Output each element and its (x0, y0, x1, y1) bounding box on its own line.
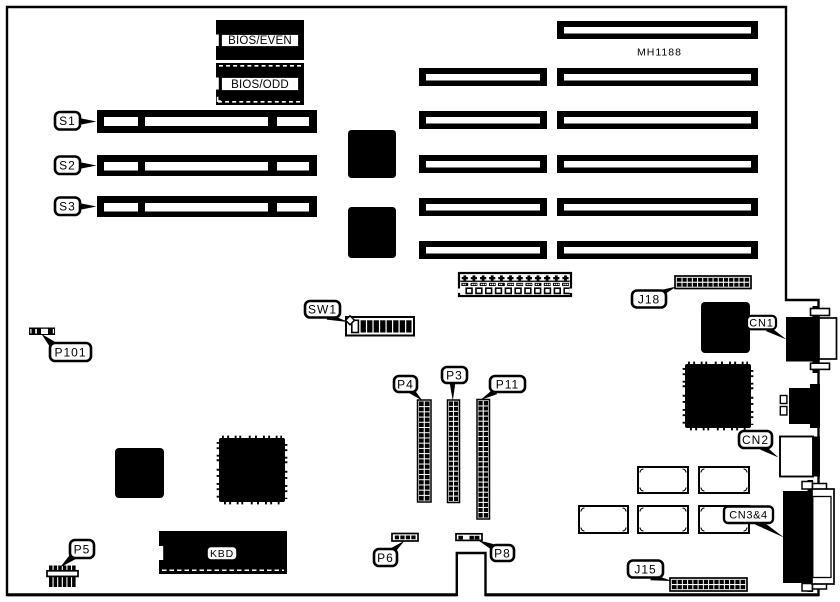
svg-text:J15: J15 (634, 562, 656, 576)
svg-text:BIOS/ODD: BIOS/ODD (231, 79, 289, 91)
svg-text:BIOS/EVEN: BIOS/EVEN (228, 35, 292, 47)
svg-text:J18: J18 (638, 292, 660, 306)
svg-text:P6: P6 (377, 551, 394, 565)
svg-text:S2: S2 (59, 159, 76, 173)
svg-text:P101: P101 (54, 345, 86, 359)
svg-text:P4: P4 (397, 377, 414, 391)
svg-text:P5: P5 (74, 542, 91, 556)
svg-text:CN1: CN1 (749, 318, 773, 330)
svg-text:CN3&4: CN3&4 (729, 510, 767, 522)
svg-text:P3: P3 (446, 368, 463, 382)
svg-text:MH1188: MH1188 (637, 47, 682, 59)
svg-text:SW1: SW1 (308, 303, 337, 317)
svg-text:P11: P11 (496, 377, 519, 391)
svg-text:S3: S3 (59, 200, 76, 214)
svg-text:KBD: KBD (210, 548, 234, 560)
svg-text:P8: P8 (494, 546, 511, 560)
svg-text:S1: S1 (59, 114, 76, 128)
svg-text:CN2: CN2 (742, 433, 769, 447)
